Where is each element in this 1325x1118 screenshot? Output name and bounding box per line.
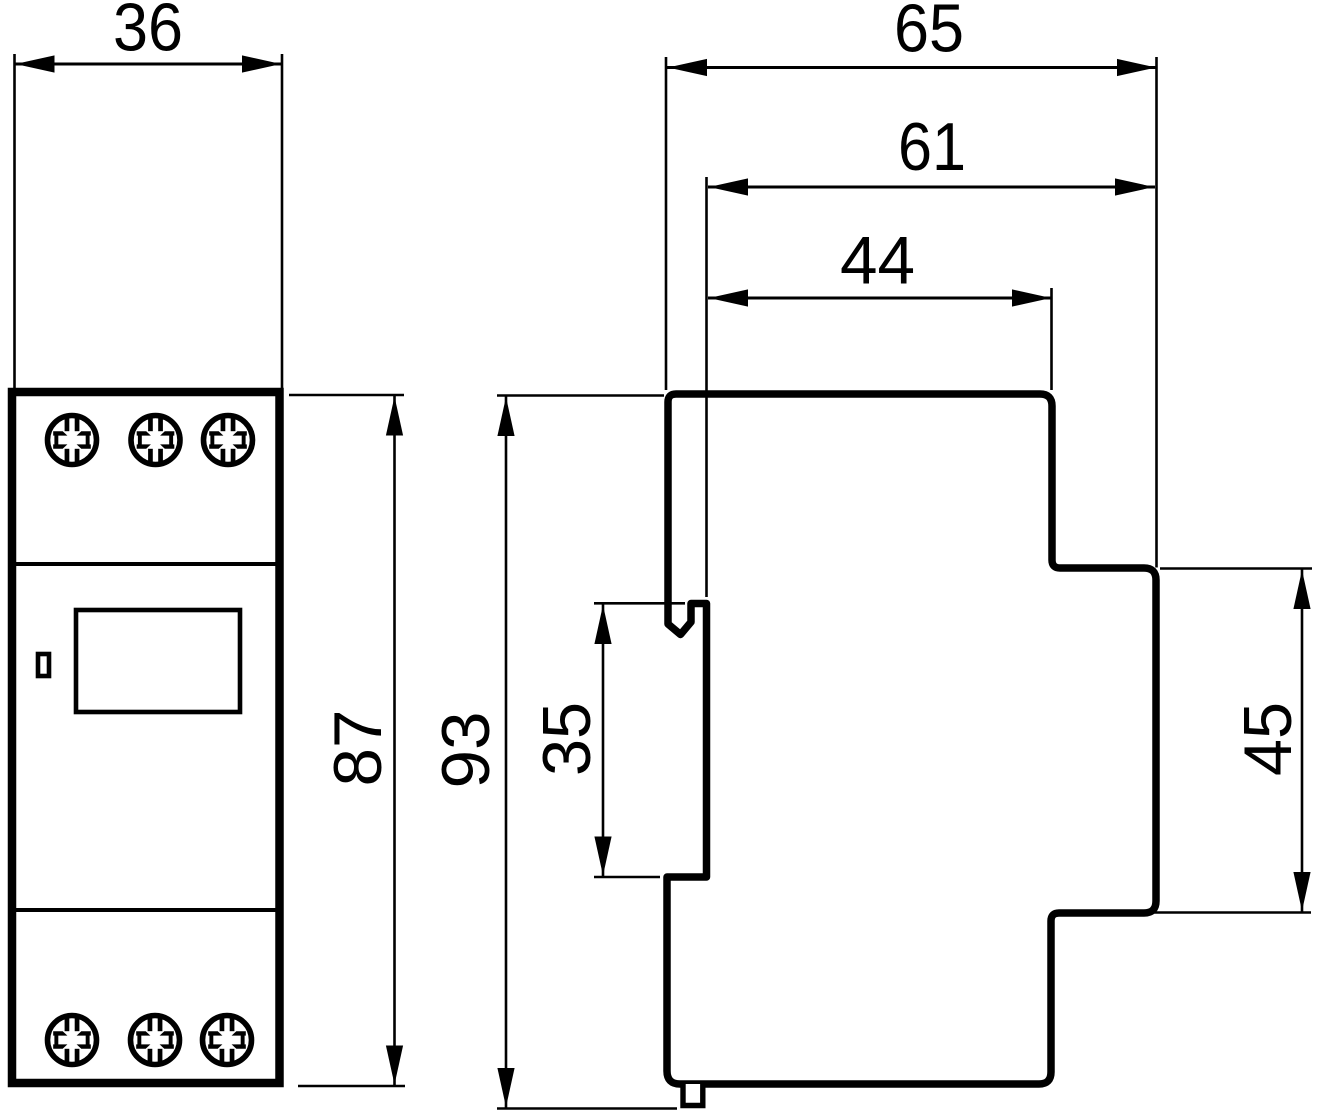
svg-text:61: 61	[898, 109, 966, 185]
svg-text:87: 87	[320, 710, 396, 787]
svg-text:44: 44	[840, 223, 915, 299]
svg-text:65: 65	[894, 0, 964, 67]
svg-text:35: 35	[529, 702, 605, 776]
svg-text:36: 36	[113, 0, 183, 66]
svg-text:93: 93	[428, 712, 504, 789]
svg-text:45: 45	[1230, 702, 1306, 776]
